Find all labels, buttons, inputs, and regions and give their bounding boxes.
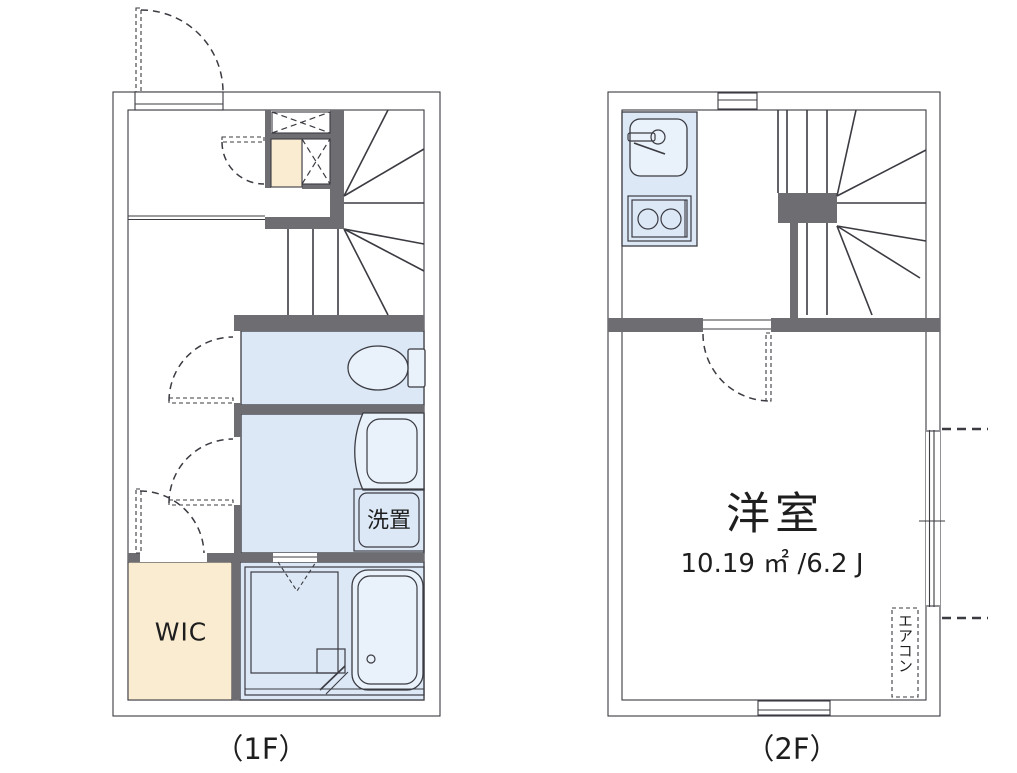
entrance-opening [135, 92, 223, 110]
storage-closet [271, 139, 302, 187]
floor-2f: エアコン 洋室 10.19 ㎡ /6.2 J （2F） [608, 92, 988, 766]
window-top [718, 93, 757, 109]
toilet-fixture [348, 346, 425, 390]
kitchen-unit [622, 112, 697, 246]
floor-plan-page: 洗置 WIC [0, 0, 1017, 773]
western-room-door-threshold [703, 318, 771, 332]
floor1-label: （1F） [214, 732, 307, 766]
western-room-area-label: 10.19 ㎡ /6.2 J [680, 549, 863, 579]
wic-label: WIC [155, 618, 208, 647]
kitchen-sink [630, 119, 687, 176]
vanity-basin [355, 413, 424, 490]
entrance-door-leaf [136, 8, 141, 92]
floor-plan-drawing: 洗置 WIC [0, 0, 1017, 773]
floor2-label: （2F） [745, 732, 838, 766]
aircon-label: エアコン [896, 613, 914, 673]
bathtub [352, 570, 423, 690]
entrance-door-arc [141, 10, 223, 92]
floor-1f: 洗置 WIC [113, 8, 440, 766]
western-room-label: 洋室 [726, 489, 824, 540]
wic-door-opening [140, 553, 207, 562]
laundry-label: 洗置 [367, 509, 411, 534]
window-bottom [758, 701, 830, 715]
